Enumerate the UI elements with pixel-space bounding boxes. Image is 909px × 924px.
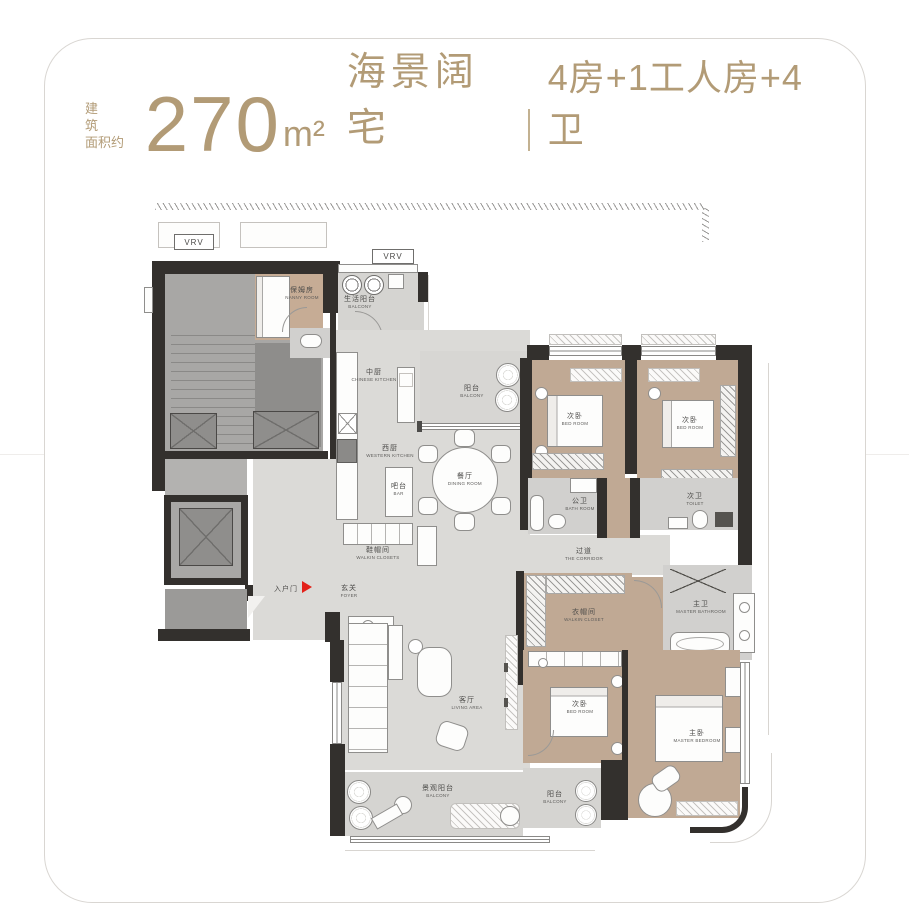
room-label-bar: 吧台 BAR [391, 483, 407, 498]
vrv-unit-2: VRV [372, 249, 414, 264]
wall [330, 744, 345, 772]
dining-chair [418, 497, 438, 515]
room-label-small-balcony: 阳台 BALCONY [542, 791, 568, 806]
window [332, 682, 342, 744]
elevator-cab [179, 508, 233, 566]
cabinet [715, 512, 733, 527]
wardrobe [532, 453, 604, 470]
room-label-living: 客厅 LIVING AREA [450, 697, 484, 712]
header: 建 筑 面积约 270 m² 海景阔宅 4房+1工人房+4卫 [85, 77, 825, 157]
cooktop-icon [338, 413, 357, 434]
foyer-floor [253, 459, 336, 640]
header-divider [528, 109, 530, 151]
toilet-icon [300, 334, 322, 348]
room-label-nanny: 保姆房 NANNY ROOM [283, 287, 320, 302]
hallway-floor [607, 478, 630, 538]
dining-chair [454, 429, 475, 447]
double-vanity [733, 593, 755, 653]
toilet-icon [692, 510, 708, 529]
elevator-shaft [170, 413, 217, 449]
wall [738, 358, 752, 598]
dining-chair [454, 513, 475, 531]
window [641, 346, 716, 356]
tv-wall [505, 635, 518, 730]
room-label-chinese-kitchen: 中厨 CHINESE KITCHEN [349, 369, 399, 384]
awning [549, 334, 622, 345]
room-label-corridor: 过道 THE CORRIDOR [563, 548, 605, 563]
wardrobe [720, 385, 736, 457]
plant-icon [575, 780, 597, 802]
closet-shelves [526, 575, 546, 647]
plant-icon [495, 388, 519, 412]
room-label-dining: 餐厅 DINING ROOM [446, 473, 484, 488]
room-label-bedroom-a: 次卧 BED ROOM [560, 413, 590, 428]
sofa-chaise [388, 625, 403, 680]
wall [630, 478, 640, 538]
area-unit: m² [283, 113, 325, 155]
room-label-view-balcony: 景观阳台 BALCONY [422, 785, 454, 800]
room-label-top-balcony: 阳台 BALCONY [459, 385, 485, 400]
plan-title: 海景阔宅 [347, 41, 514, 153]
page-divider-left [0, 454, 44, 455]
core-vent [144, 287, 153, 313]
decor-icon [538, 658, 548, 668]
bathtub-basin [676, 637, 724, 651]
wall [597, 478, 607, 538]
boundary-hatch-top [155, 203, 705, 210]
island-sink [399, 373, 413, 387]
room-label-western-kitchen: 西厨 WESTERN KITCHEN [364, 445, 417, 460]
layout-spec: 4房+1工人房+4卫 [548, 49, 825, 153]
sofa [348, 623, 388, 753]
wall [152, 451, 328, 459]
vrv-unit-1: VRV [174, 234, 214, 250]
elevator-shaft-walls [164, 495, 248, 585]
bathtub-icon [530, 495, 544, 531]
closet-shelves [546, 575, 625, 594]
room-label-walkin-closet: 衣帽间 WALKIN CLOSET [562, 609, 606, 624]
entry-arrow-icon [302, 581, 312, 593]
elevator-shaft [253, 411, 319, 449]
shoe-cabinet [417, 526, 437, 566]
area-prefix: 建 筑 面积约 [85, 100, 139, 151]
wall [325, 612, 340, 642]
curtain [648, 368, 700, 382]
window [740, 662, 750, 784]
nightstand [725, 667, 741, 697]
wall [625, 360, 637, 474]
wall [418, 272, 428, 302]
coffee-table [417, 647, 452, 697]
dining-chair [491, 497, 511, 515]
nightstand [648, 387, 661, 400]
plant-icon [575, 804, 597, 826]
cabinet [504, 698, 508, 707]
wall [622, 345, 641, 360]
curtain [570, 368, 622, 382]
tv-icon [504, 663, 508, 672]
wall [330, 640, 344, 682]
room-label-bedroom-c: 次卧 BED ROOM [565, 701, 595, 716]
bed [655, 695, 723, 762]
wall [322, 261, 338, 313]
plant-icon [347, 780, 371, 804]
floor-plan: VRV VRV 保姆房 NANNY ROOM 生活阳台 BALCONY [150, 195, 800, 867]
room-label-service-balcony: 生活阳台 BALCONY [344, 296, 376, 311]
sink-icon [668, 517, 688, 529]
room-label-shoe-closet: 鞋帽间 WALKIN CLOSETS [354, 547, 402, 562]
room-label-toilet: 次卫 TOILET [685, 493, 704, 508]
wall [330, 772, 345, 836]
boundary-hatch-corner [702, 208, 709, 242]
area-number: 270 [145, 89, 281, 159]
nightstand [535, 387, 548, 400]
room-label-foyer: 玄关 FOYER [340, 585, 359, 600]
room-label-master-bath: 主卫 MASTER BATHROOM [673, 601, 728, 616]
fridge-icon [337, 439, 357, 463]
area-prefix-line1: 建 筑 [85, 100, 139, 134]
toilet-icon [548, 514, 566, 529]
area-prefix-line2: 面积约 [85, 134, 139, 151]
dining-chair [491, 445, 511, 463]
sink-icon [739, 602, 750, 613]
washer-icon [364, 275, 384, 295]
wall [158, 629, 250, 641]
wall-curved [690, 787, 748, 833]
plant-icon [349, 806, 373, 830]
nightstand [725, 727, 741, 753]
wall [601, 760, 628, 820]
window-post [417, 421, 422, 432]
boundary-line-south [345, 850, 595, 851]
page-divider-right [866, 454, 909, 455]
laundry-counter [338, 264, 418, 273]
window [350, 836, 550, 843]
pillow [500, 806, 520, 826]
room-label-bedroom-b: 次卧 BED ROOM [675, 417, 705, 432]
service-room-floor [165, 589, 247, 629]
dining-table: 餐厅 DINING ROOM [432, 447, 498, 513]
window [549, 346, 622, 356]
shoe-cabinet [343, 523, 413, 545]
shower-glass [670, 569, 726, 593]
elevator-lobby-floor [165, 459, 247, 495]
entry-door-label: 入户门 [274, 586, 298, 594]
plant-icon [496, 363, 520, 387]
window [420, 423, 530, 430]
vanity [570, 478, 597, 493]
room-label-master-bedroom: 主卧 MASTER BEDROOM [671, 730, 723, 745]
boundary-line-east [768, 363, 769, 735]
sink-icon [739, 630, 750, 641]
roof-box [240, 222, 327, 248]
laundry-sink [388, 274, 404, 289]
wall [152, 261, 340, 274]
awning [641, 334, 716, 345]
room-label-public-bath: 公卫 BATH ROOM [564, 498, 597, 513]
dining-chair [418, 445, 438, 463]
washer-icon [342, 275, 362, 295]
